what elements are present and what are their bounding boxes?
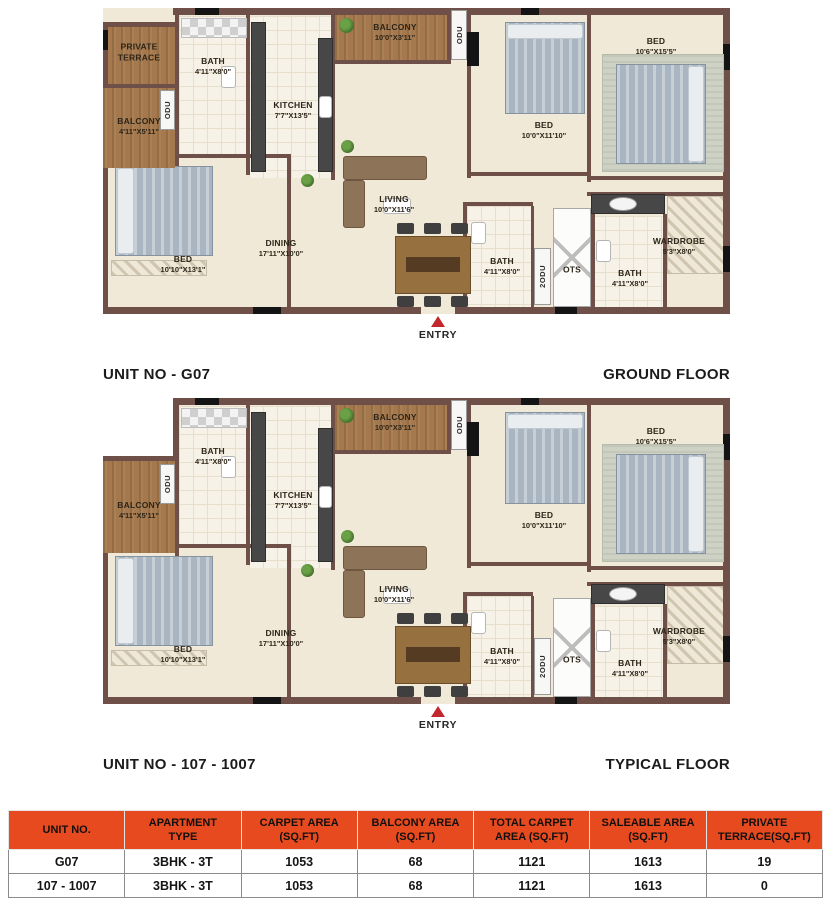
washer-tiles [181, 408, 247, 428]
plant-balcony [339, 18, 354, 33]
room-name-text: BALCONY [117, 500, 160, 511]
table-header-cell: APARTMENTTYPE [125, 811, 241, 850]
plant-living [341, 140, 354, 153]
dining-label-caption: DINING17'11"X10'0" [259, 238, 303, 258]
room-name-text: BALCONY [117, 116, 160, 127]
room-dims-text: 4'11"X5'11" [117, 511, 160, 520]
bed-3-label-caption: BED10'6"X15'5" [636, 426, 677, 446]
entry-door-opening [421, 697, 455, 704]
dining-chair [424, 686, 441, 697]
wall-accent [723, 246, 730, 272]
floor-plan-sheet: BATH4'11"X8'0"KITCHEN7'7"X13'5"BALCONY10… [0, 0, 831, 900]
room-dims-text: 10'10"X13'1" [161, 265, 206, 274]
room-dims-text: 10'0"X11'10" [522, 131, 566, 140]
wardrobe-label-caption: WARDROBE5'3"X8'0" [653, 626, 705, 646]
header-line-2: (SQ.FT) [592, 830, 703, 844]
wall-accent [723, 636, 730, 662]
room-dims-text: 4'11"X8'0" [484, 267, 520, 276]
room-name-text: WARDROBE [653, 236, 705, 247]
bed-3-pillow [688, 456, 704, 552]
wall-bed3-bottom [587, 176, 730, 180]
wardrobe-floor [667, 586, 725, 664]
balcony-top-floor-caption: BALCONY10'0"X3'11" [373, 412, 416, 432]
plant-kitchen [301, 564, 314, 577]
living-label-caption: LIVING10'0"X11'6" [374, 194, 414, 214]
room-name-text: LIVING [374, 194, 414, 205]
area-summary-table: UNIT NO.APARTMENTTYPECARPET AREA(SQ.FT)B… [8, 810, 823, 898]
room-dims-text: 4'11"X8'0" [195, 67, 231, 76]
room-dims-text: 4'11"X8'0" [612, 669, 648, 678]
wall-bottom [103, 697, 730, 704]
stove [319, 96, 332, 118]
room-name-text: BALCONY [373, 22, 416, 33]
room-name-text: BATH [484, 646, 520, 657]
ots-shaft-caption: OTS [563, 655, 581, 666]
room-name-text: BED [522, 120, 566, 131]
bath-2-label-caption: BATH4'11"X8'0" [484, 256, 520, 276]
table-cell: 68 [357, 850, 473, 874]
dining-chair [424, 223, 441, 234]
table-cell: 68 [357, 874, 473, 898]
odu-top: ODU [451, 400, 467, 450]
wall-accent [253, 697, 281, 704]
bath-3-label-caption: BATH4'11"X8'0" [612, 268, 648, 288]
sofa-vertical [343, 180, 365, 228]
plant-living [341, 530, 354, 543]
typical-floor-title-row: UNIT NO - 107 - 1007 TYPICAL FLOOR [103, 756, 730, 773]
room-dims-text: 7'7"X13'5" [273, 111, 312, 120]
wall-bed2-bottom [467, 172, 591, 176]
header-line-2: (SQ.FT) [360, 830, 471, 844]
bed-2-label-caption: BED10'0"X11'10" [522, 120, 566, 140]
odu-top-text: ODU [455, 416, 464, 434]
wall-accent [195, 398, 219, 405]
wall-balcony-living [331, 450, 451, 454]
bath-1-floor-caption: BATH4'11"X8'0" [195, 56, 231, 76]
balcony-top-floor-caption: BALCONY10'0"X3'11" [373, 22, 416, 42]
room-dims-text: 10'0"X3'11" [373, 423, 416, 432]
room-dims-text: 17'11"X10'0" [259, 639, 303, 648]
room-name-text: PRIVATE TERRACE [105, 41, 173, 62]
wall-accent [555, 697, 577, 704]
ots-shaft [553, 208, 591, 307]
odu-left: ODU [160, 464, 175, 504]
wall-bottom [103, 307, 730, 314]
entry-label: ENTRY [403, 329, 473, 341]
wall-bed1-right [287, 544, 291, 697]
odu-2: 2ODU [534, 638, 551, 695]
stove [319, 486, 332, 508]
washer-tiles [181, 18, 247, 38]
room-name-text: DINING [259, 238, 303, 249]
room-dims-text: 4'11"X8'0" [612, 279, 648, 288]
entry-arrow-icon [431, 316, 445, 327]
area-table-body: G073BHK - 3T1053681121161319107 - 10073B… [9, 850, 823, 898]
room-dims-text: 5'3"X8'0" [653, 247, 705, 256]
wardrobe-label-caption: WARDROBE5'3"X8'0" [653, 236, 705, 256]
dining-chair [424, 613, 441, 624]
odu-left-text: ODU [163, 475, 172, 493]
bed-1-pillow [117, 168, 134, 254]
bed-2-pillow [507, 414, 583, 429]
bath-1-floor-caption: BATH4'11"X8'0" [195, 446, 231, 466]
toilet-bath2 [471, 222, 486, 244]
room-name-text: WARDROBE [653, 626, 705, 637]
kitchen-floor-caption: KITCHEN7'7"X13'5" [273, 100, 312, 120]
table-cell: 1613 [590, 850, 706, 874]
unit-number-typical: UNIT NO - 107 - 1007 [103, 756, 256, 773]
dining-table-runner [406, 647, 460, 662]
bed-3-label-caption: BED10'6"X15'5" [636, 36, 677, 56]
ground-floor-title-row: UNIT NO - G07 GROUND FLOOR [103, 366, 730, 383]
table-header-cell: BALCONY AREA(SQ.FT) [357, 811, 473, 850]
odu-2-text: 2ODU [538, 265, 547, 288]
room-name-text: BATH [612, 658, 648, 669]
table-header-cell: CARPET AREA(SQ.FT) [241, 811, 357, 850]
header-line-1: APARTMENT [127, 816, 238, 830]
table-cell: 107 - 1007 [9, 874, 125, 898]
entry-arrow-icon [431, 706, 445, 717]
wall-bath2-top [463, 592, 533, 596]
dining-chair [451, 686, 468, 697]
table-cell: G07 [9, 850, 125, 874]
wardrobe-floor [667, 196, 725, 274]
room-name-text: OTS [563, 265, 581, 276]
table-cell: 1613 [590, 874, 706, 898]
room-name-text: BED [522, 510, 566, 521]
room-dims-text: 10'6"X15'5" [636, 47, 677, 56]
wall-bed2-bed3 [587, 8, 591, 182]
wall-body-left-upper [173, 398, 179, 460]
room-dims-text: 5'3"X8'0" [653, 637, 705, 646]
header-line-2: (SQ.FT) [244, 830, 355, 844]
table-header-cell: PRIVATETERRACE(SQ.FT) [706, 811, 822, 850]
kitchen-floor-caption: KITCHEN7'7"X13'5" [273, 490, 312, 510]
dining-chair [451, 296, 468, 307]
private-terrace-caption: PRIVATE TERRACE [105, 41, 173, 62]
kitchen-counter-left [251, 412, 266, 562]
table-cell: 19 [706, 850, 822, 874]
living-label-caption: LIVING10'0"X11'6" [374, 584, 414, 604]
room-dims-text: 7'7"X13'5" [273, 501, 312, 510]
header-line-1: UNIT NO. [11, 823, 122, 837]
bed-1-label-caption: BED10'10"X13'1" [161, 644, 206, 664]
table-cell: 3BHK - 3T [125, 874, 241, 898]
odu-top-unit [467, 422, 479, 456]
room-name-text: BED [636, 426, 677, 437]
sofa-vertical [343, 570, 365, 618]
bed-1-pillow [117, 558, 134, 644]
ots-shaft [553, 598, 591, 697]
wall-accent [195, 8, 219, 15]
toilet-bath3 [596, 630, 611, 652]
bed-2-pillow [507, 24, 583, 39]
bed-1-label-caption: BED10'10"X13'1" [161, 254, 206, 274]
odu-left-text: ODU [163, 101, 172, 119]
room-name-text: DINING [259, 628, 303, 639]
toilet-bath3 [596, 240, 611, 262]
dining-chair [397, 223, 414, 234]
header-line-1: CARPET AREA [244, 816, 355, 830]
unit-number-ground: UNIT NO - G07 [103, 366, 210, 383]
plant-balcony [339, 408, 354, 423]
header-line-1: BALCONY AREA [360, 816, 471, 830]
bath-2-label-caption: BATH4'11"X8'0" [484, 646, 520, 666]
dining-chair [397, 296, 414, 307]
dining-chair [451, 613, 468, 624]
bed-2-label-caption: BED10'0"X11'10" [522, 510, 566, 530]
room-name-text: BED [161, 254, 206, 265]
dining-label-caption: DINING17'11"X10'0" [259, 628, 303, 648]
odu-top-text: ODU [455, 26, 464, 44]
table-header-cell: TOTAL CARPETAREA (SQ.FT) [474, 811, 590, 850]
wall-balcony-living [331, 60, 451, 64]
room-name-text: BED [636, 36, 677, 47]
odu-2-text: 2ODU [538, 655, 547, 678]
plant-kitchen [301, 174, 314, 187]
room-name-text: BATH [195, 446, 231, 457]
area-table-header: UNIT NO.APARTMENTTYPECARPET AREA(SQ.FT)B… [9, 811, 823, 850]
floor-plan-ground: BATH4'11"X8'0"KITCHEN7'7"X13'5"BALCONY10… [103, 8, 730, 314]
odu-top: ODU [451, 10, 467, 60]
room-name-text: BED [161, 644, 206, 655]
bed-3-pillow [688, 66, 704, 162]
wall-accent [723, 44, 730, 70]
table-row: 107 - 10073BHK - 3T105368112116130 [9, 874, 823, 898]
header-line-1: PRIVATE [709, 816, 820, 830]
room-name-text: KITCHEN [273, 490, 312, 501]
table-cell: 0 [706, 874, 822, 898]
toilet-bath2 [471, 612, 486, 634]
wall-bath3-wardrobe [663, 604, 667, 697]
ots-shaft-caption: OTS [563, 265, 581, 276]
wall-ots-right [591, 602, 595, 697]
floor-name-typical: TYPICAL FLOOR [606, 756, 730, 773]
room-name-text: BATH [484, 256, 520, 267]
wall-bath2-top [463, 202, 533, 206]
wall-bed2-bed3 [587, 398, 591, 572]
room-dims-text: 10'0"X3'11" [373, 33, 416, 42]
header-line-2: AREA (SQ.FT) [476, 830, 587, 844]
table-row: G073BHK - 3T1053681121161319 [9, 850, 823, 874]
table-header-cell: SALEABLE AREA(SQ.FT) [590, 811, 706, 850]
balcony-left-caption: BALCONY4'11"X5'11" [117, 500, 160, 520]
entry-label: ENTRY [403, 719, 473, 731]
entry-door-opening [421, 307, 455, 314]
wall-accent [723, 434, 730, 460]
wall-bed2-bottom [467, 562, 591, 566]
room-dims-text: 4'11"X8'0" [484, 657, 520, 666]
sofa-horizontal [343, 156, 427, 180]
room-name-text: LIVING [374, 584, 414, 595]
balcony-left-caption: BALCONY4'11"X5'11" [117, 116, 160, 136]
table-cell: 1121 [474, 850, 590, 874]
room-dims-text: 10'0"X11'10" [522, 521, 566, 530]
room-dims-text: 10'10"X13'1" [161, 655, 206, 664]
dining-table-runner [406, 257, 460, 272]
floor-name-ground: GROUND FLOOR [603, 366, 730, 383]
table-cell: 3BHK - 3T [125, 850, 241, 874]
odu-left: ODU [160, 90, 175, 130]
basin [609, 587, 637, 601]
wall-bath3-wardrobe [663, 214, 667, 307]
wall-bed1-right [287, 154, 291, 307]
room-name-text: BATH [195, 56, 231, 67]
header-line-1: TOTAL CARPET [476, 816, 587, 830]
wall-terrace-top [103, 22, 179, 27]
wall-accent [253, 307, 281, 314]
odu-2: 2ODU [534, 248, 551, 305]
room-dims-text: 4'11"X8'0" [195, 457, 231, 466]
kitchen-counter-left [251, 22, 266, 172]
floor-plan-typical: BATH4'11"X8'0"KITCHEN7'7"X13'5"BALCONY10… [103, 398, 730, 704]
table-cell: 1121 [474, 874, 590, 898]
table-cell: 1053 [241, 874, 357, 898]
wall-accent [555, 307, 577, 314]
table-header-cell: UNIT NO. [9, 811, 125, 850]
bath-3-label-caption: BATH4'11"X8'0" [612, 658, 648, 678]
wall-bath1-kitchen [246, 405, 250, 565]
wall-accent [521, 8, 539, 15]
room-name-text: BATH [612, 268, 648, 279]
room-name-text: BALCONY [373, 412, 416, 423]
dining-chair [424, 296, 441, 307]
dining-chair [397, 686, 414, 697]
sofa-horizontal [343, 546, 427, 570]
room-dims-text: 10'0"X11'6" [374, 205, 414, 214]
odu-top-unit [467, 32, 479, 66]
header-line-2: TERRACE(SQ.FT) [709, 830, 820, 844]
header-line-2: TYPE [127, 830, 238, 844]
room-name-text: OTS [563, 655, 581, 666]
wall-accent [521, 398, 539, 405]
header-line-1: SALEABLE AREA [592, 816, 703, 830]
table-cell: 1053 [241, 850, 357, 874]
room-dims-text: 17'11"X10'0" [259, 249, 303, 258]
wall-ots-right [591, 212, 595, 307]
outside-notch [103, 398, 173, 456]
room-dims-text: 10'0"X11'6" [374, 595, 414, 604]
dining-chair [451, 223, 468, 234]
room-name-text: KITCHEN [273, 100, 312, 111]
basin [609, 197, 637, 211]
wall-bath1-kitchen [246, 15, 250, 175]
wall-bed3-bottom [587, 566, 730, 570]
room-dims-text: 10'6"X15'5" [636, 437, 677, 446]
table-header-row: UNIT NO.APARTMENTTYPECARPET AREA(SQ.FT)B… [9, 811, 823, 850]
room-dims-text: 4'11"X5'11" [117, 127, 160, 136]
dining-chair [397, 613, 414, 624]
